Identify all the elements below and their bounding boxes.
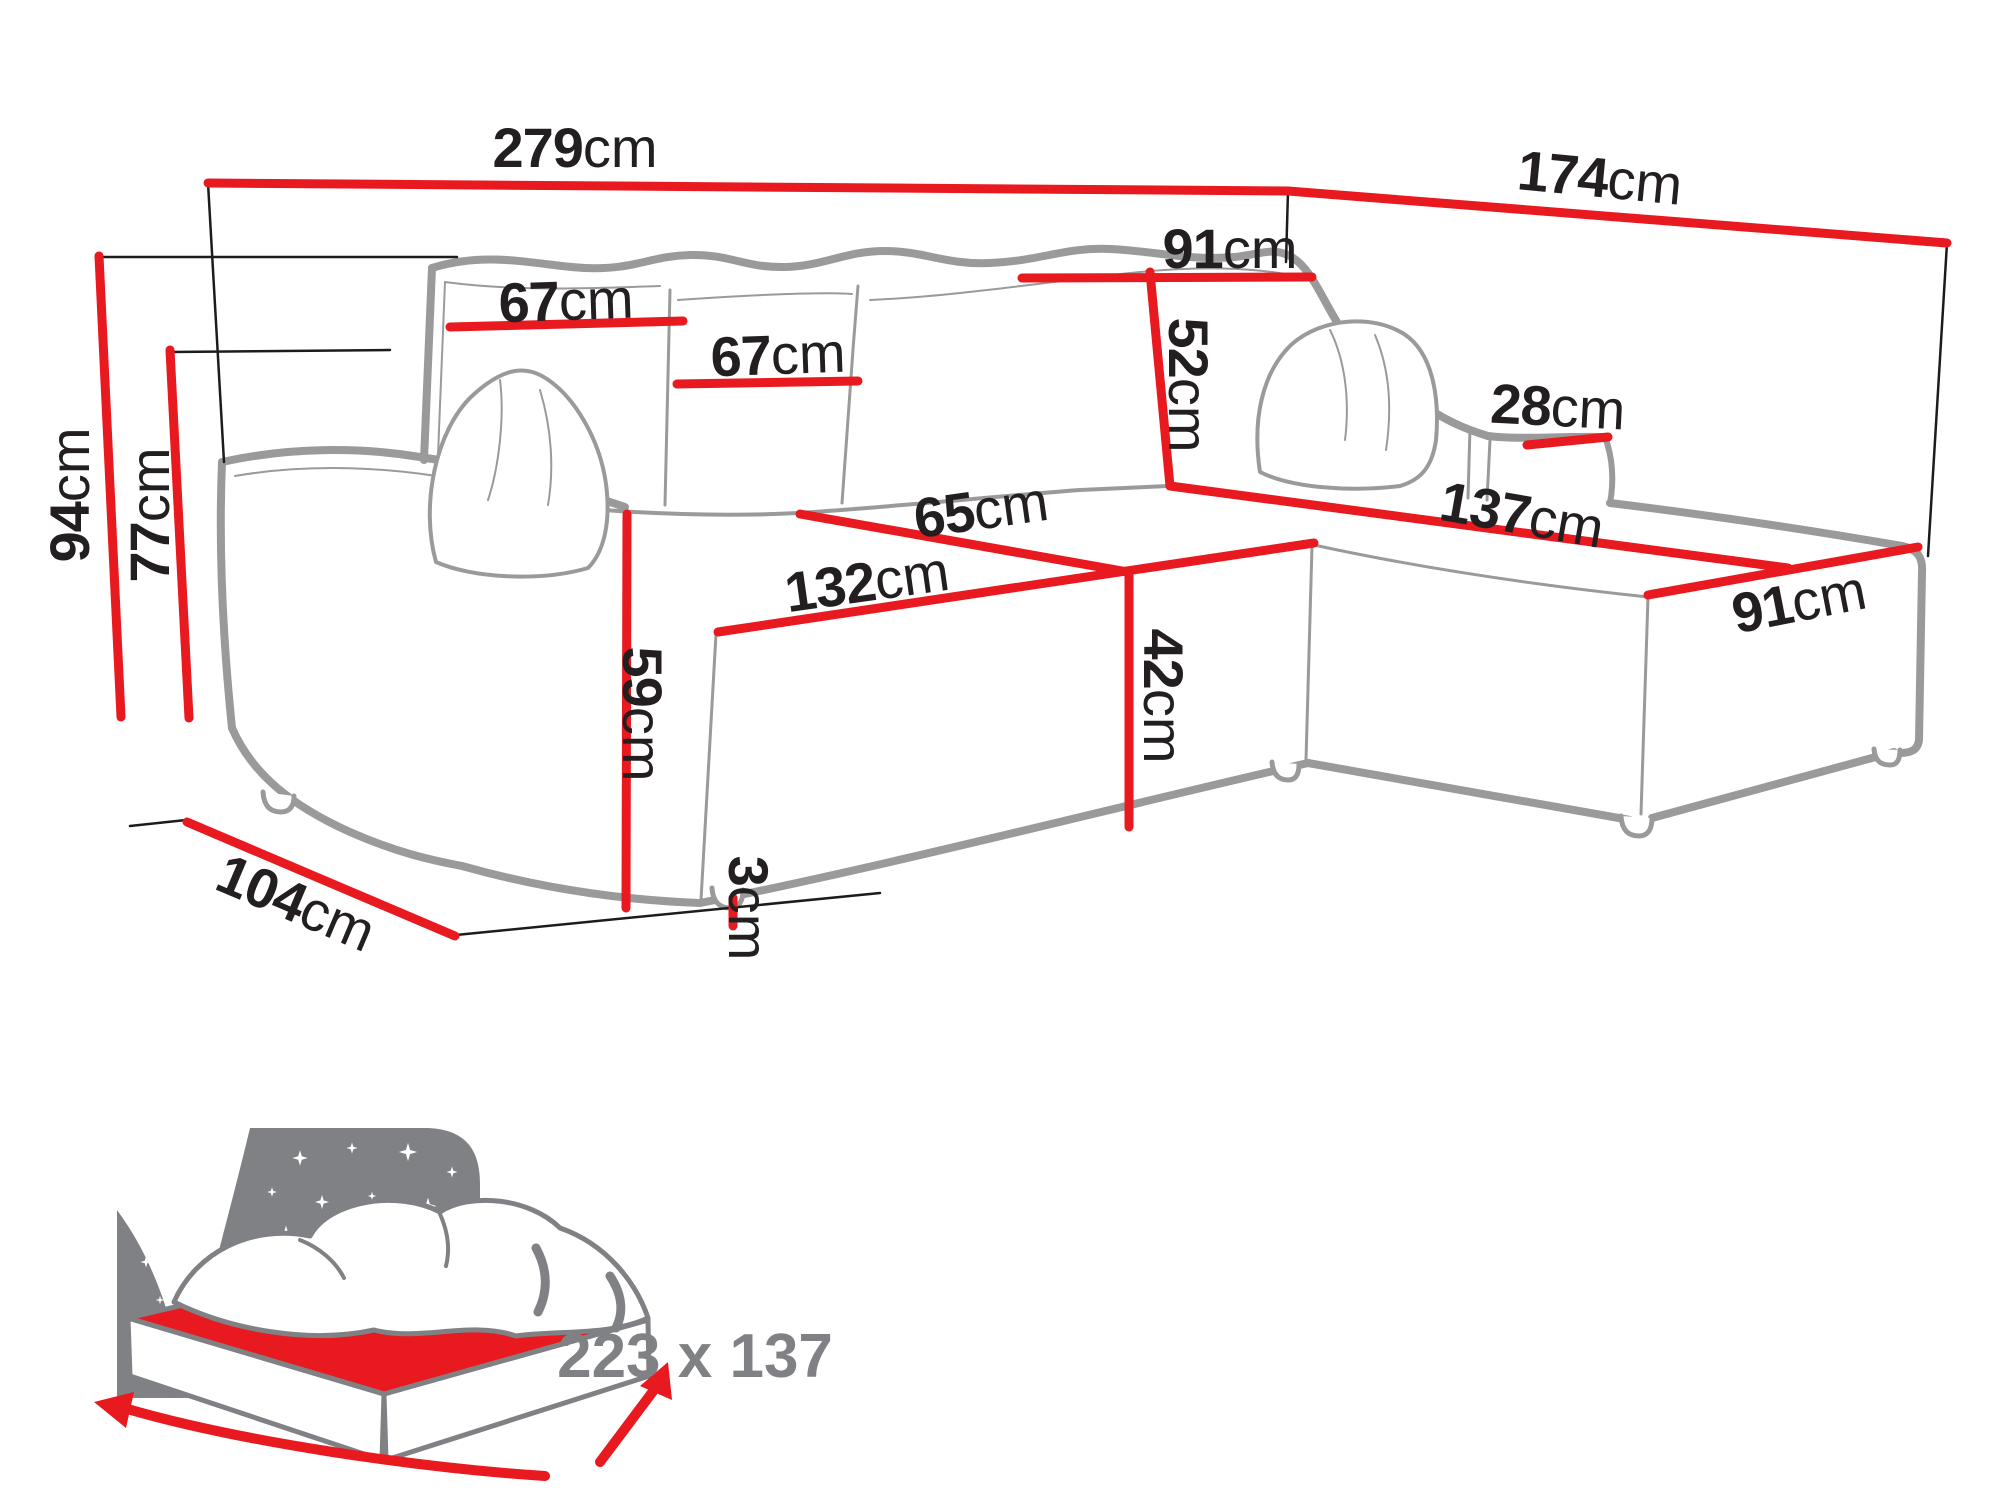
dimension-lines	[99, 183, 1947, 936]
box-left-vertical-line	[208, 183, 224, 462]
left-throw-pillow	[430, 370, 608, 576]
floor-line-left	[130, 820, 186, 826]
dimension-label-3: 3cm	[720, 856, 776, 961]
bed-size-label: 223 x 137	[557, 1326, 833, 1388]
dimension-label-67-left: 67cm	[498, 271, 635, 332]
right-throw-pillow	[1257, 321, 1437, 488]
dimension-line-279	[208, 183, 1288, 191]
dimension-label-42: 42cm	[1135, 629, 1191, 764]
sleep-function-icon	[94, 1128, 672, 1476]
box-right-vertical-line	[1928, 243, 1947, 556]
dimension-label-91-top: 91cm	[1163, 221, 1298, 277]
dimension-label-174: 174cm	[1515, 142, 1685, 214]
dimension-label-59: 59cm	[614, 647, 670, 782]
sofa-legs	[263, 749, 1900, 908]
construction-lines	[99, 183, 1947, 935]
dimension-label-94: 94cm	[42, 428, 98, 563]
dimension-label-77: 77cm	[122, 448, 178, 583]
sofa-dimension-drawing	[0, 0, 2000, 1500]
diagram-canvas: 279cm 174cm 91cm 67cm 67cm 52cm 28cm 137…	[0, 0, 2000, 1500]
dimension-label-28: 28cm	[1489, 376, 1627, 439]
dimension-label-279: 279cm	[492, 120, 657, 176]
dimension-label-52: 52cm	[1160, 318, 1216, 453]
dimension-label-67-middle: 67cm	[710, 325, 847, 386]
height-77-reference-line	[171, 350, 390, 352]
